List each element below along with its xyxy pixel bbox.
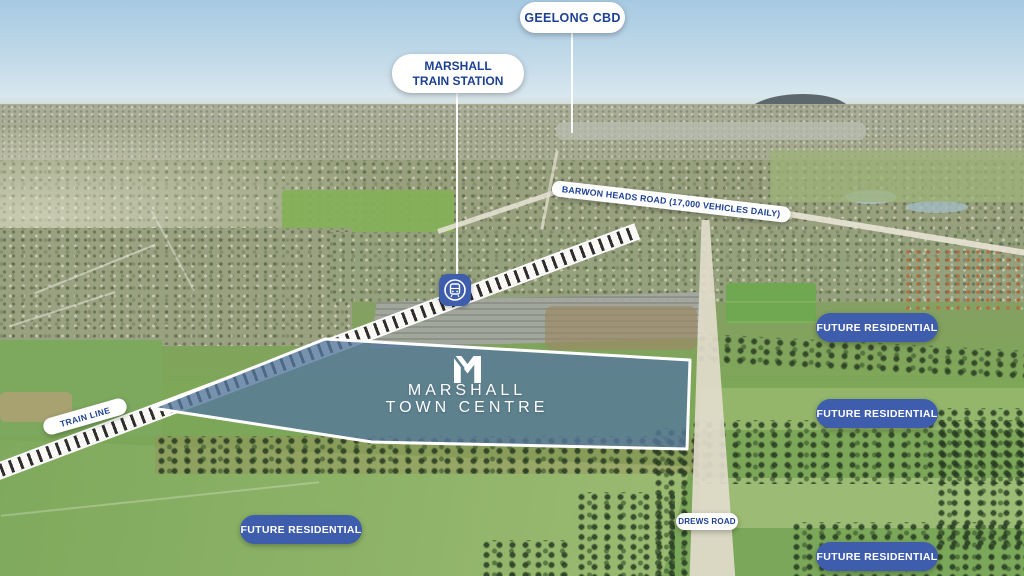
marshall-m-logo-icon (454, 356, 481, 383)
future-residential-pill-right-middle: FUTURE RESIDENTIAL (816, 399, 938, 428)
marshall-station-label-line1: MARSHALL (424, 59, 491, 74)
site-name-line2: TOWN CENTRE (347, 399, 587, 417)
future-residential-pill-bottom-right: FUTURE RESIDENTIAL (816, 542, 938, 571)
train-station-icon (439, 274, 471, 306)
callout-drews-road: DREWS ROAD (676, 513, 738, 530)
callout-marshall-train-station: MARSHALL TRAIN STATION (392, 54, 524, 93)
future-residential-pill-bottom-left: FUTURE RESIDENTIAL (240, 515, 362, 544)
aerial-site-map: MARSHALL TOWN CENTRE GEELONG CBD MARSHAL… (0, 0, 1024, 576)
train-station-badge (439, 274, 471, 306)
site-name-line1: MARSHALL (347, 382, 587, 400)
marshall-station-label-line2: TRAIN STATION (413, 74, 504, 89)
station-leader-line (456, 92, 458, 278)
callout-geelong-cbd: GEELONG CBD (520, 2, 625, 33)
future-residential-pill-right-upper: FUTURE RESIDENTIAL (816, 313, 938, 342)
geelong-leader-line (571, 33, 573, 133)
